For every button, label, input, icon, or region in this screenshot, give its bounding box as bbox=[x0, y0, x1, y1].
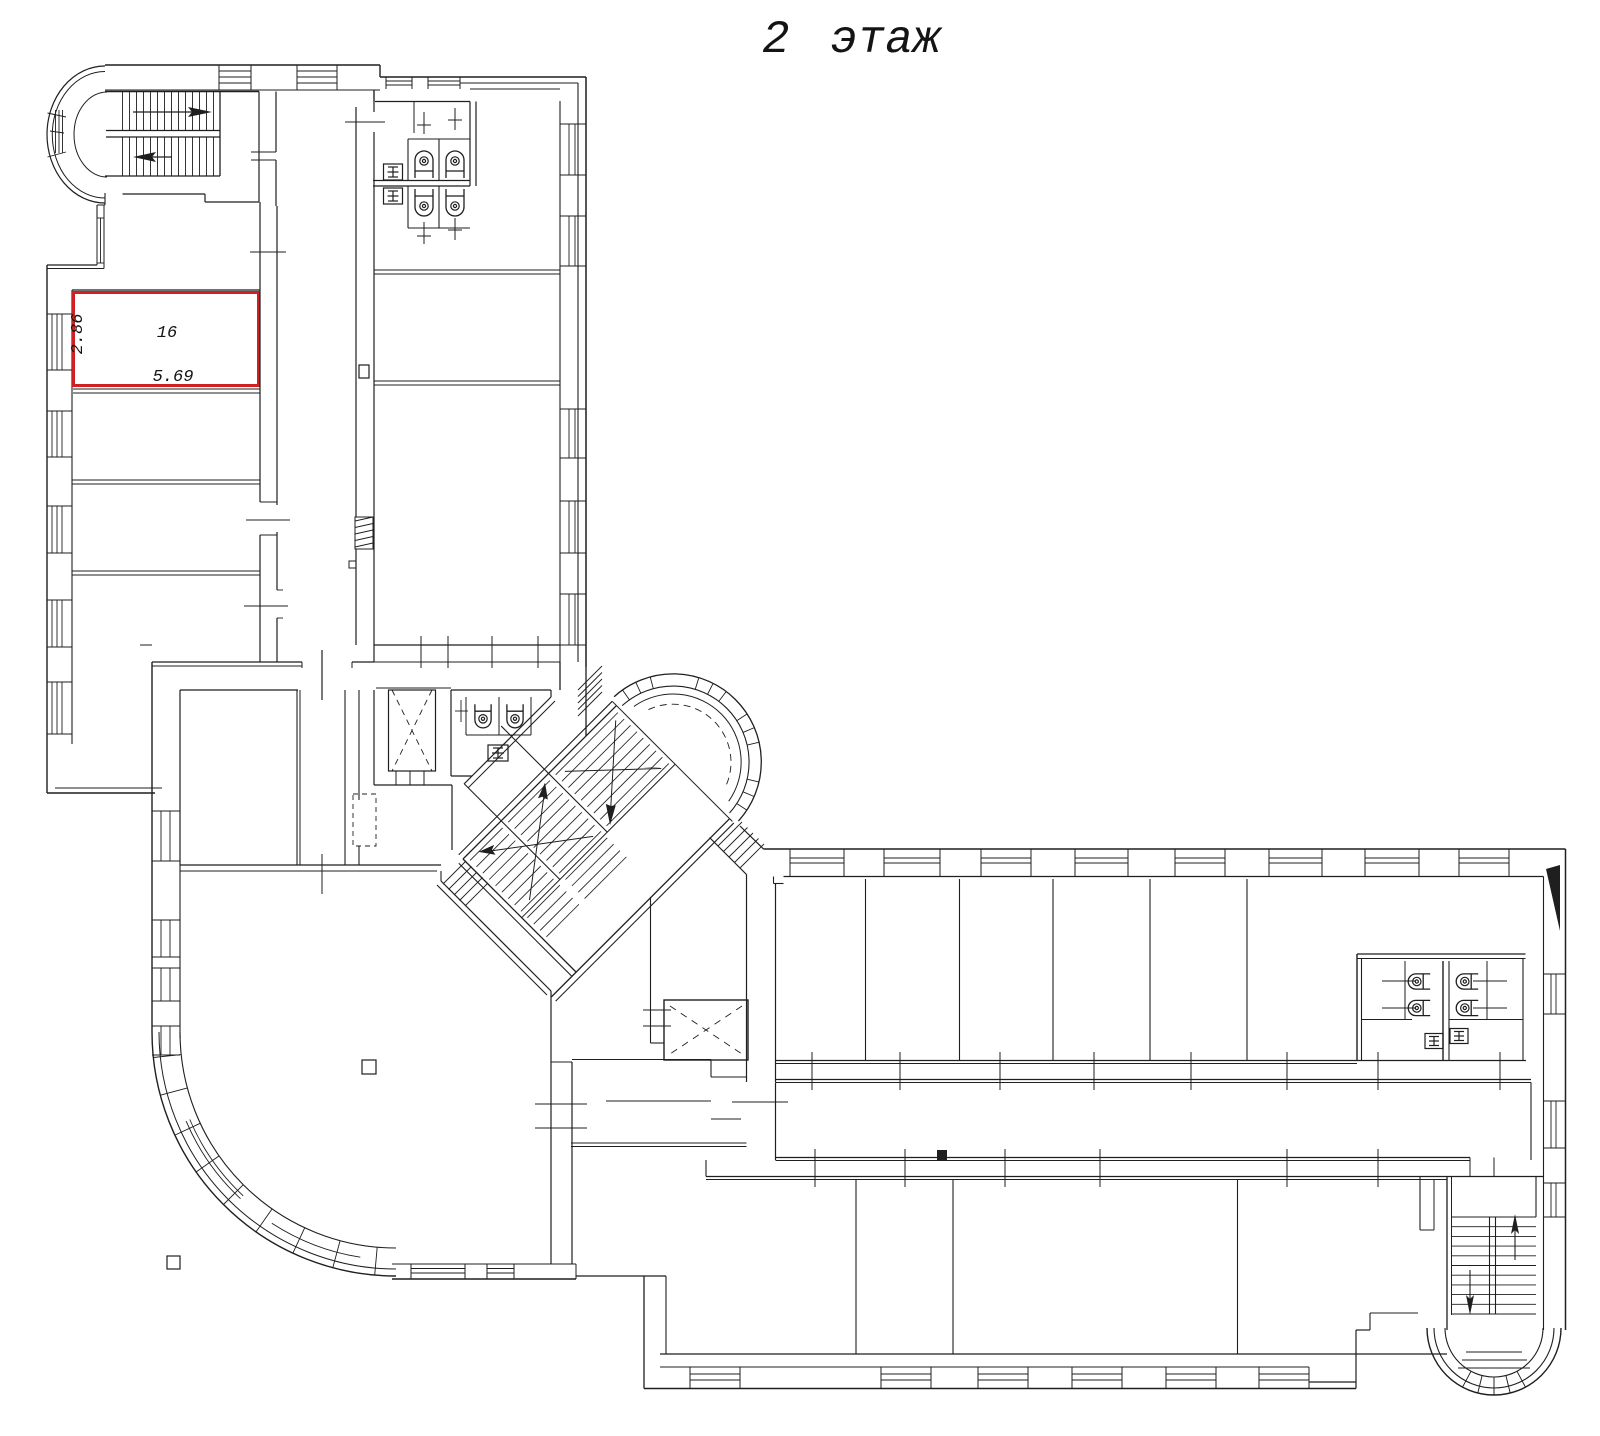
svg-text:этаж: этаж bbox=[830, 14, 943, 66]
svg-text:2.86: 2.86 bbox=[69, 314, 88, 355]
svg-text:2: 2 bbox=[762, 14, 790, 66]
svg-text:16: 16 bbox=[157, 324, 177, 343]
svg-text:5.69: 5.69 bbox=[153, 368, 194, 387]
